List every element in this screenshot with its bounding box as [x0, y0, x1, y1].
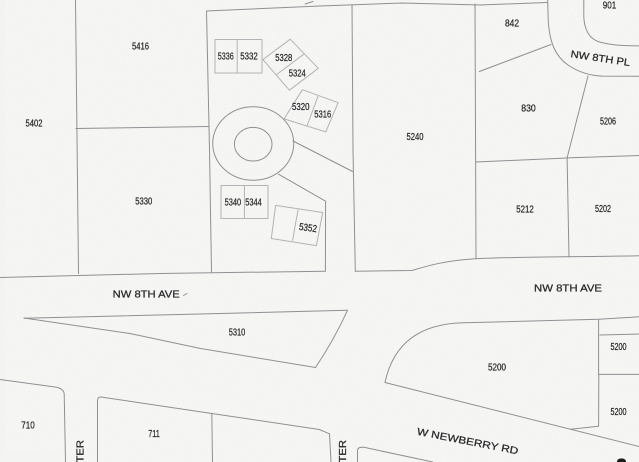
svg-text:842: 842	[505, 18, 519, 29]
svg-text:5200: 5200	[611, 407, 627, 418]
svg-text:5316: 5316	[314, 110, 331, 121]
svg-text:5202: 5202	[595, 204, 611, 215]
svg-text:5336: 5336	[218, 52, 234, 63]
svg-text:NW 8TH AVE: NW 8TH AVE	[534, 283, 602, 294]
svg-text:5330: 5330	[135, 197, 152, 208]
svg-text:711: 711	[148, 429, 160, 440]
svg-text:5324: 5324	[289, 69, 306, 80]
svg-text:5240: 5240	[407, 132, 424, 143]
svg-text:5416: 5416	[132, 42, 149, 53]
svg-text:5402: 5402	[26, 118, 43, 129]
svg-text:5320: 5320	[292, 102, 310, 113]
svg-text:5212: 5212	[516, 205, 534, 216]
svg-text:5340: 5340	[225, 198, 242, 209]
svg-text:901: 901	[603, 1, 617, 12]
svg-text:5310: 5310	[229, 328, 246, 339]
svg-text:TER: TER	[338, 440, 349, 462]
svg-text:5328: 5328	[275, 53, 292, 64]
svg-text:5344: 5344	[245, 198, 262, 209]
svg-text:5200: 5200	[611, 342, 627, 353]
svg-text:TER: TER	[75, 440, 86, 462]
svg-text:830: 830	[521, 103, 536, 114]
svg-text:710: 710	[21, 420, 35, 431]
svg-text:NW 8TH AVE: NW 8TH AVE	[113, 289, 180, 300]
svg-text:5332: 5332	[240, 52, 258, 63]
svg-text:5200: 5200	[488, 363, 506, 374]
svg-text:5206: 5206	[600, 117, 616, 128]
